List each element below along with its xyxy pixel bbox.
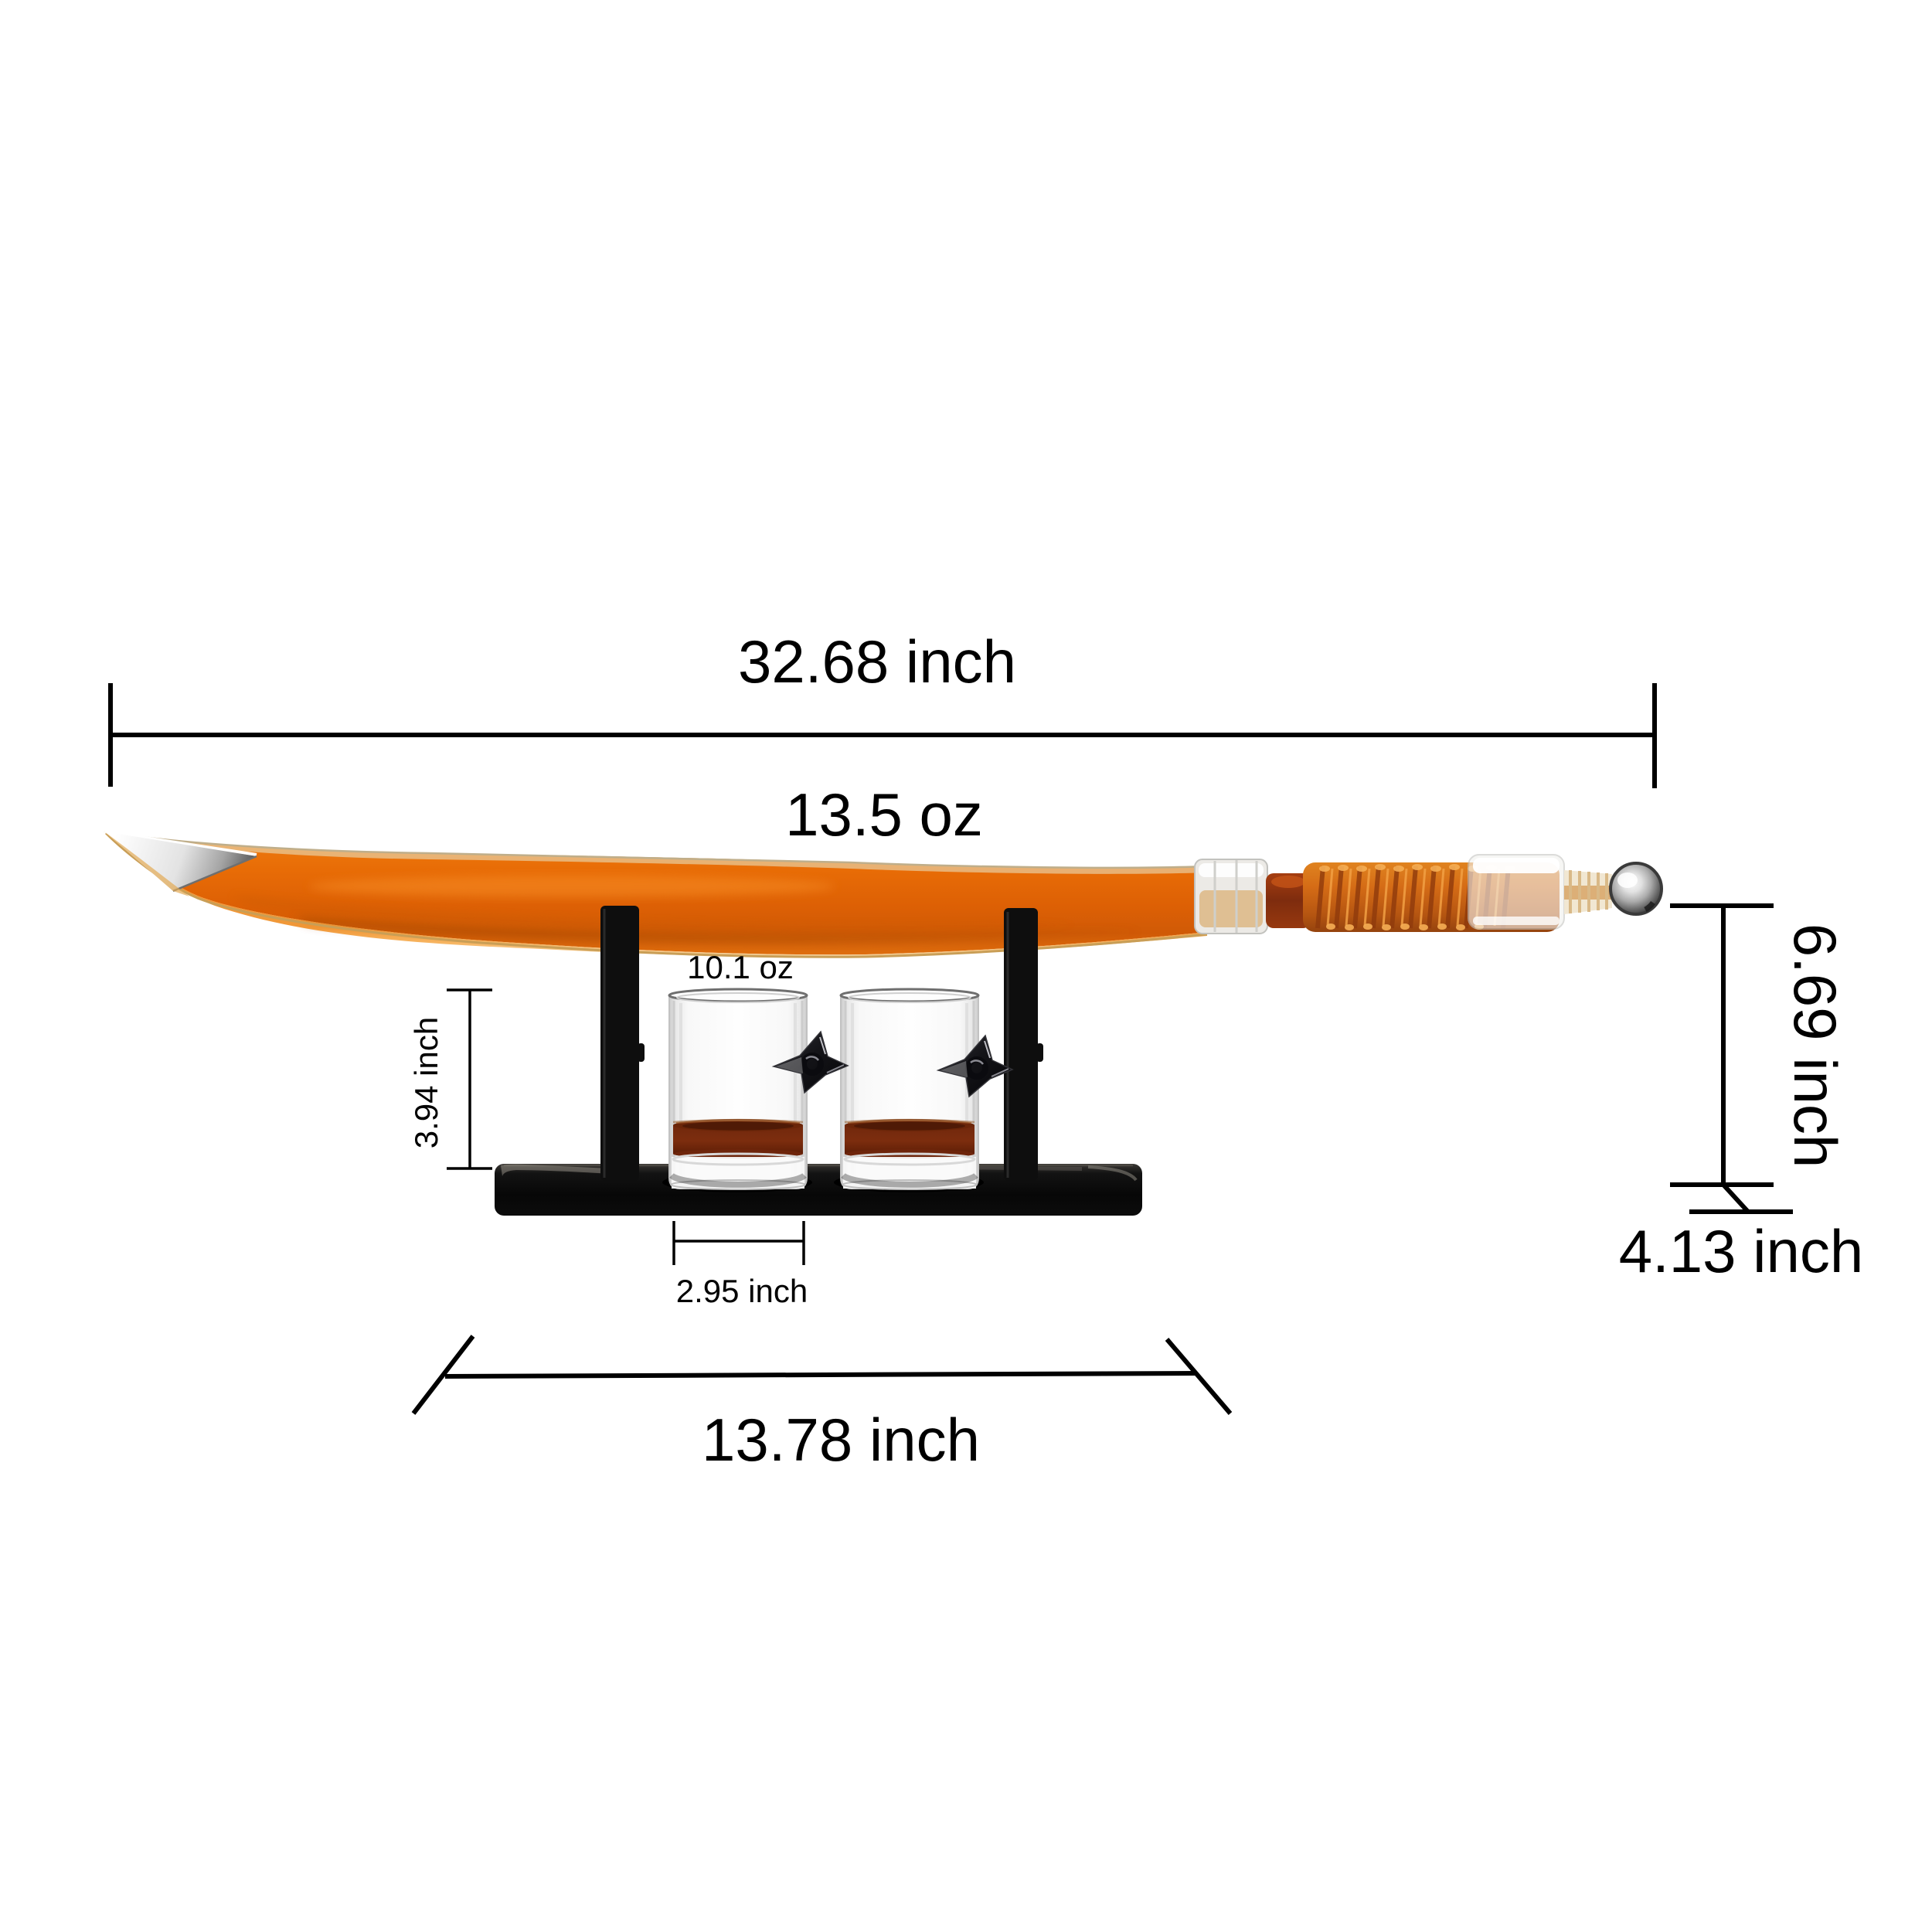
svg-text:10.1 oz: 10.1 oz [687,949,794,985]
svg-text:2.95 inch: 2.95 inch [676,1273,808,1309]
svg-text:3.94 inch: 3.94 inch [408,1017,444,1148]
svg-text:6.69 inch: 6.69 inch [1781,923,1849,1168]
svg-text:13.78 inch: 13.78 inch [702,1406,980,1474]
svg-text:13.5 oz: 13.5 oz [785,781,983,849]
svg-text:32.68 inch: 32.68 inch [738,628,1016,696]
svg-text:4.13 inch: 4.13 inch [1619,1217,1864,1285]
